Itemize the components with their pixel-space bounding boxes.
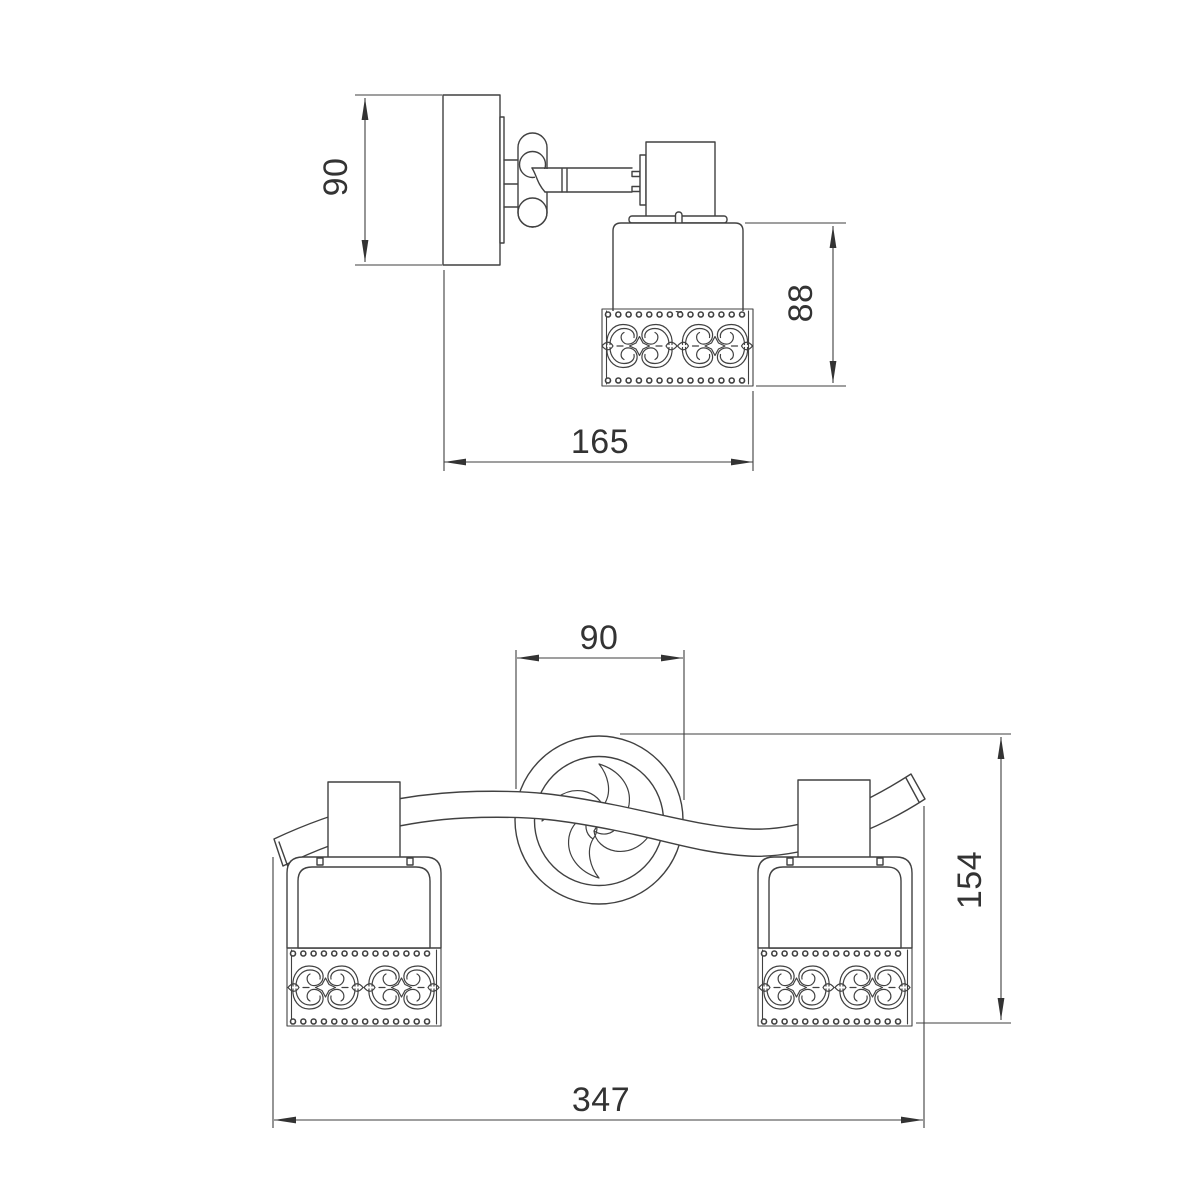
right-lamp [758, 857, 912, 1026]
technical-drawing: 90 88 165 [0, 0, 1200, 1200]
wall-plate-back-strip [500, 117, 504, 243]
front-view: 90 154 347 [273, 619, 1011, 1128]
mount-bracket [504, 160, 518, 207]
dim-front-total-height-label: 154 [951, 851, 989, 909]
dim-side-plate-height: 90 [317, 95, 442, 265]
right-shade-body [769, 867, 901, 948]
dim-side-plate-height-label: 90 [317, 158, 355, 197]
swivel-arm [532, 155, 646, 205]
left-lamp-stem [328, 782, 400, 860]
wall-plate [443, 95, 500, 265]
technical-drawing-page: 90 88 165 [0, 0, 1200, 1200]
dim-side-shade-height: 88 [745, 223, 846, 386]
dim-side-depth-label: 165 [571, 423, 629, 461]
side-view: 90 88 165 [317, 95, 846, 471]
lamp-body [646, 142, 715, 217]
lace-band-side [602, 309, 753, 386]
right-lamp-stem [798, 780, 870, 860]
left-shade-body [298, 867, 430, 948]
dim-front-canopy-diameter-label: 90 [580, 619, 619, 657]
arm-pin-bottom [632, 187, 640, 192]
head-mount-plate [640, 155, 646, 205]
shade-body [613, 223, 743, 311]
left-lace-band [287, 948, 441, 1026]
dim-side-shade-height-label: 88 [782, 284, 820, 323]
dim-front-total-width-label: 347 [572, 1081, 630, 1119]
right-lace-band [758, 948, 912, 1026]
arm-pin-top [632, 172, 640, 177]
left-lamp [287, 857, 441, 1026]
